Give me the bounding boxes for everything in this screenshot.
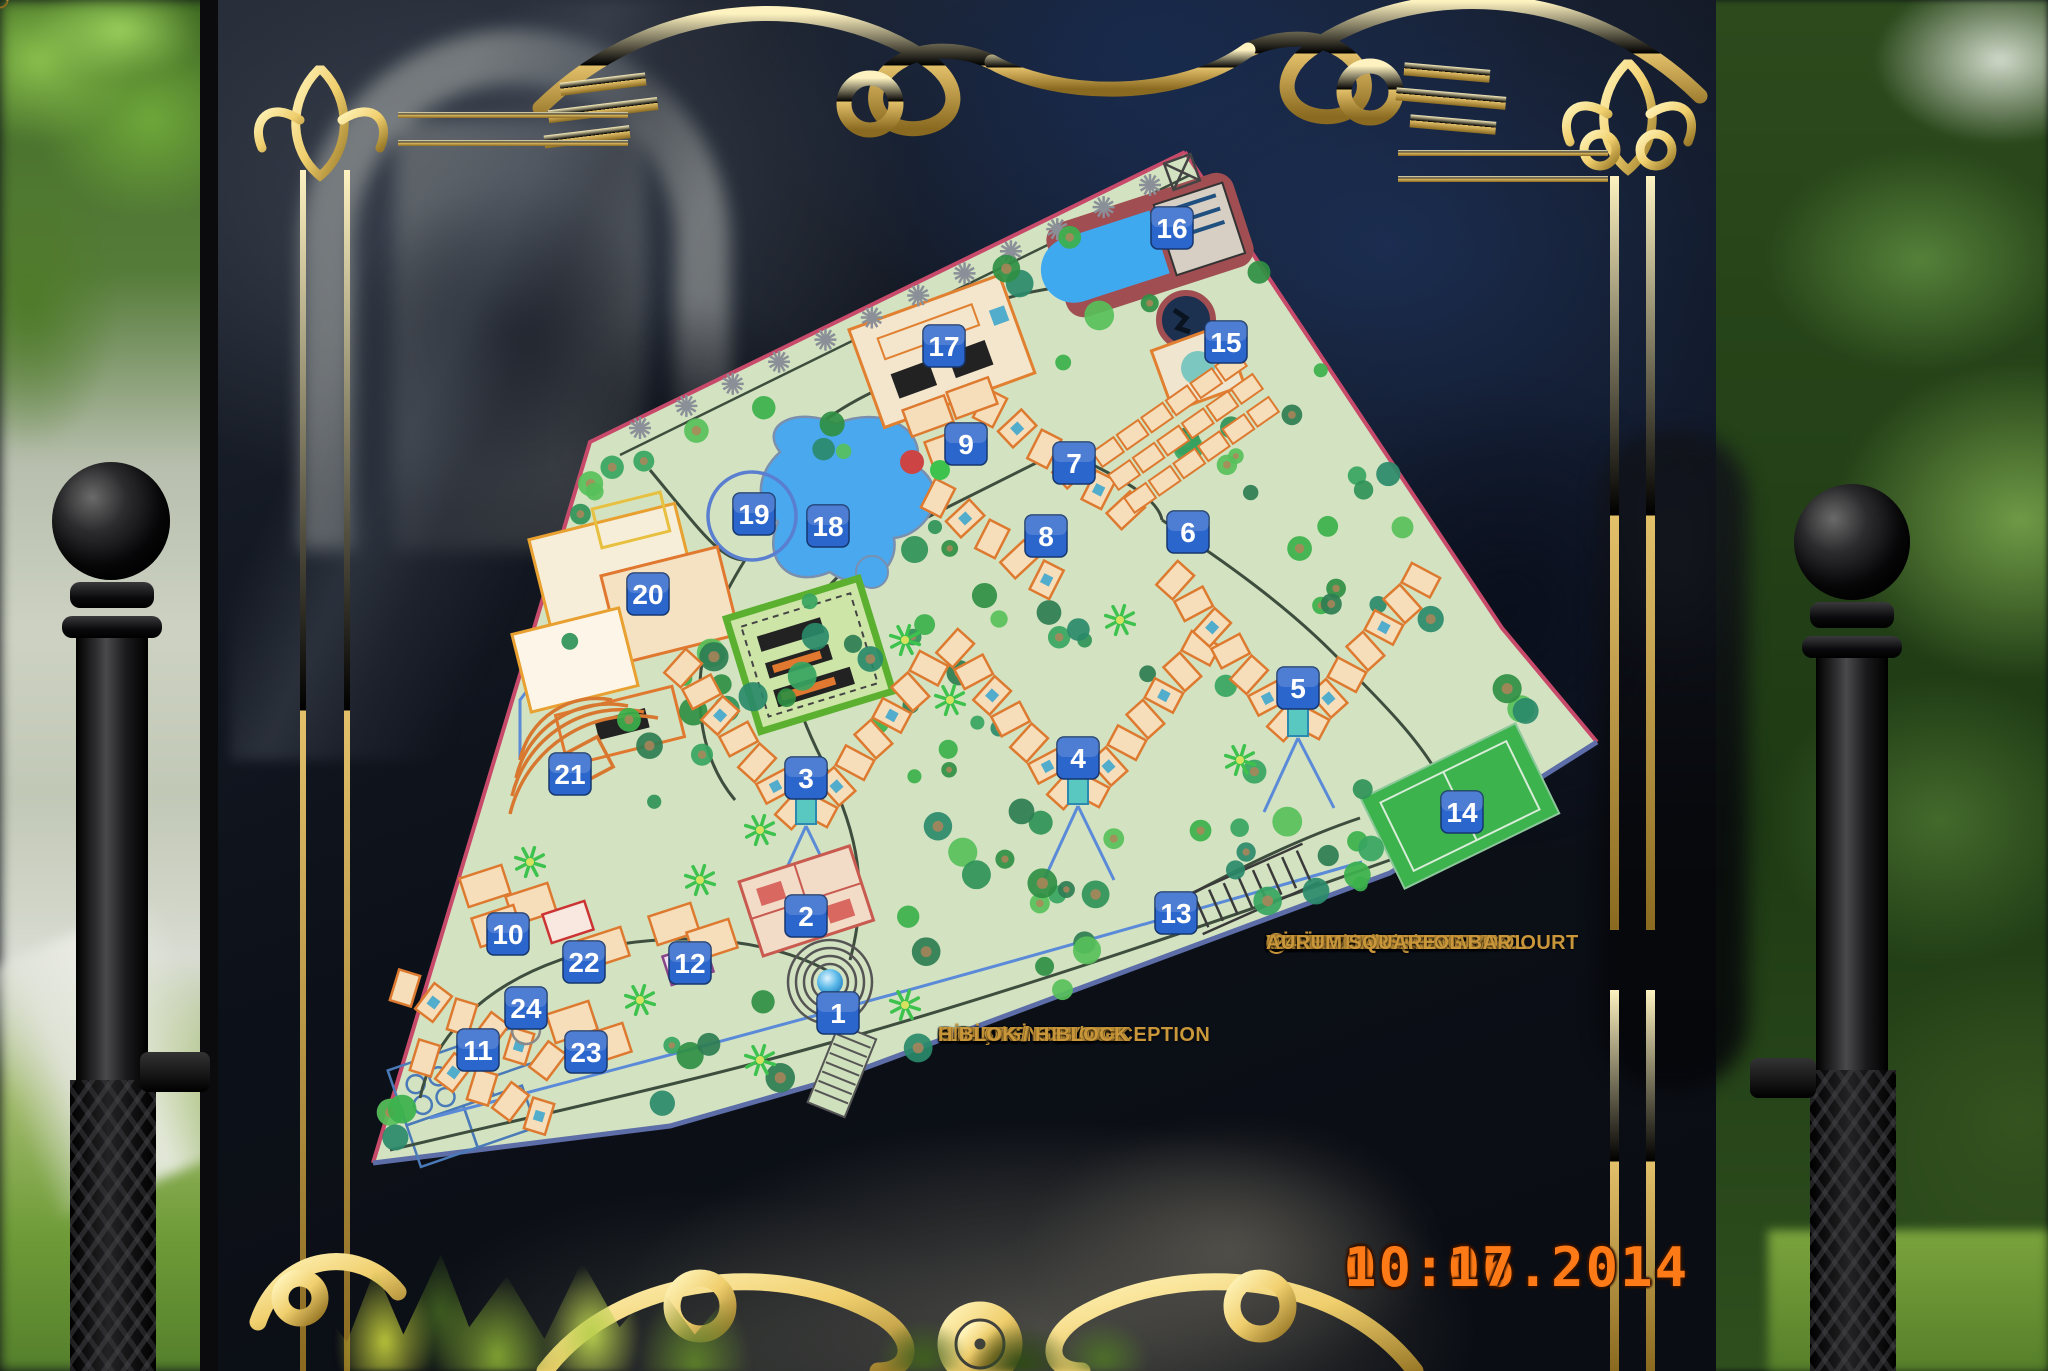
- svg-text:9: 9: [958, 429, 974, 460]
- tree: [751, 990, 774, 1013]
- tree: [1103, 828, 1124, 849]
- tree: [1243, 485, 1258, 500]
- svg-text:3: 3: [798, 763, 814, 794]
- tree: [1317, 516, 1338, 537]
- tree: [1190, 820, 1212, 842]
- svg-text:5: 5: [1290, 673, 1306, 704]
- svg-text:17: 17: [928, 331, 959, 362]
- map-marker-3: 3: [785, 757, 827, 799]
- svg-text:19: 19: [738, 499, 769, 530]
- svg-text:20: 20: [632, 579, 663, 610]
- svg-text:4: 4: [1070, 743, 1086, 774]
- map-marker-9: 9: [945, 423, 987, 465]
- map-marker-23: 23: [565, 1031, 607, 1073]
- tree: [1055, 355, 1071, 371]
- resort-site-map: 123456789101112131415161718192021222324: [0, 0, 2048, 1371]
- tree: [857, 646, 883, 672]
- map-marker-21: 21: [549, 753, 591, 795]
- map-marker-24: 24: [505, 987, 547, 1029]
- post-ball-finial: [52, 462, 170, 580]
- map-marker-7: 7: [1053, 442, 1095, 484]
- tree: [1282, 404, 1303, 425]
- svg-text:10: 10: [492, 919, 523, 950]
- tree: [1037, 600, 1062, 625]
- post-ball-finial: [1794, 484, 1910, 600]
- tree: [1314, 363, 1328, 377]
- map-marker-20: 20: [627, 573, 669, 615]
- tree: [1353, 877, 1368, 892]
- map-marker-8: 8: [1025, 515, 1067, 557]
- tree: [1052, 979, 1073, 1000]
- tree: [812, 438, 835, 461]
- tree: [1303, 878, 1330, 905]
- tree: [1358, 836, 1384, 862]
- svg-text:6: 6: [1180, 517, 1196, 548]
- tree: [561, 633, 578, 650]
- map-marker-15: 15: [1205, 321, 1247, 363]
- tree: [844, 635, 862, 653]
- map-marker-19: 19: [733, 493, 775, 535]
- tree: [1318, 845, 1339, 866]
- tree: [388, 1095, 417, 1124]
- svg-text:24: 24: [510, 993, 542, 1024]
- tree: [647, 795, 661, 809]
- tree: [972, 583, 997, 608]
- svg-text:1: 1: [830, 998, 846, 1029]
- tree: [777, 688, 796, 707]
- tree: [636, 732, 663, 759]
- tree: [836, 444, 851, 459]
- tree: [1287, 536, 1312, 561]
- tree: [1035, 957, 1054, 976]
- tree: [912, 937, 941, 966]
- svg-text:14: 14: [1446, 797, 1478, 828]
- tree: [1353, 779, 1373, 799]
- tree: [941, 762, 957, 778]
- tree: [633, 451, 654, 472]
- tree: [1230, 818, 1249, 837]
- tree: [1027, 868, 1057, 898]
- map-marker-11: 11: [457, 1029, 499, 1071]
- tree: [1058, 226, 1081, 249]
- svg-text:16: 16: [1156, 213, 1187, 244]
- map-marker-16: 16: [1151, 207, 1193, 249]
- map-marker-12: 12: [669, 942, 711, 984]
- tree: [802, 593, 818, 609]
- tree: [1248, 261, 1271, 284]
- tree: [1513, 698, 1539, 724]
- photo-of-resort-map-sign: 123456789101112131415161718192021222324 …: [0, 0, 2048, 1371]
- tree: [941, 540, 958, 557]
- tree: [897, 905, 919, 927]
- tree: [617, 708, 641, 732]
- tree: [1321, 594, 1342, 615]
- tree: [739, 682, 768, 711]
- time-text: 10:17: [1344, 1236, 1517, 1299]
- map-marker-10: 10: [487, 913, 529, 955]
- tree: [1418, 606, 1444, 632]
- svg-text:15: 15: [1210, 327, 1241, 358]
- map-marker-18: 18: [807, 505, 849, 547]
- map-marker-5: 5: [1277, 667, 1319, 709]
- tree: [1354, 480, 1373, 499]
- tree: [1226, 860, 1245, 879]
- tree: [939, 740, 958, 759]
- tree: [600, 456, 623, 479]
- tree: [699, 642, 728, 671]
- foreground-plant-center: [840, 1305, 1170, 1371]
- tree: [993, 255, 1021, 283]
- svg-text:8: 8: [1038, 521, 1054, 552]
- tree: [1236, 842, 1255, 861]
- tree: [904, 1034, 933, 1063]
- tree: [1082, 880, 1110, 908]
- tree: [1376, 462, 1400, 486]
- tree: [788, 662, 817, 691]
- tree: [995, 850, 1014, 869]
- tree: [970, 716, 984, 730]
- tree: [901, 536, 928, 563]
- tree: [570, 504, 591, 525]
- tree: [1073, 936, 1101, 964]
- tree: [1084, 301, 1114, 331]
- svg-text:21: 21: [554, 759, 585, 790]
- tree: [1253, 887, 1282, 916]
- svg-text:18: 18: [812, 511, 843, 542]
- tree: [928, 520, 942, 534]
- tree: [691, 744, 713, 766]
- tree: [1067, 618, 1090, 641]
- svg-text:11: 11: [463, 1035, 493, 1066]
- tree: [1493, 674, 1522, 703]
- map-marker-2: 2: [785, 895, 827, 937]
- tree: [1228, 448, 1244, 464]
- svg-text:22: 22: [568, 947, 599, 978]
- tree: [962, 860, 991, 889]
- tree: [382, 1124, 408, 1150]
- map-marker-4: 4: [1057, 737, 1099, 779]
- tree: [1009, 798, 1035, 824]
- svg-text:23: 23: [570, 1037, 601, 1068]
- tree: [802, 623, 829, 650]
- svg-text:7: 7: [1066, 448, 1082, 479]
- tree: [1272, 807, 1302, 837]
- map-marker-22: 22: [563, 941, 605, 983]
- map-marker-6: 6: [1167, 511, 1209, 553]
- tree: [752, 396, 775, 419]
- tree: [1058, 881, 1075, 898]
- tree: [765, 1063, 795, 1093]
- tree: [1392, 516, 1414, 538]
- tree: [684, 418, 709, 443]
- tree: [650, 1091, 675, 1116]
- tree: [924, 812, 952, 840]
- tree: [820, 411, 845, 436]
- svg-text:13: 13: [1160, 898, 1191, 929]
- map-marker-17: 17: [923, 325, 965, 367]
- map-marker-14: 14: [1441, 791, 1483, 833]
- tree: [586, 483, 604, 501]
- map-marker-1: 1: [817, 992, 859, 1034]
- svg-text:2: 2: [798, 901, 814, 932]
- map-marker-13: 13: [1155, 892, 1197, 934]
- tree: [990, 610, 1007, 627]
- tree: [1141, 294, 1159, 312]
- tree: [697, 1033, 720, 1056]
- tree: [907, 769, 921, 783]
- svg-text:12: 12: [674, 948, 705, 979]
